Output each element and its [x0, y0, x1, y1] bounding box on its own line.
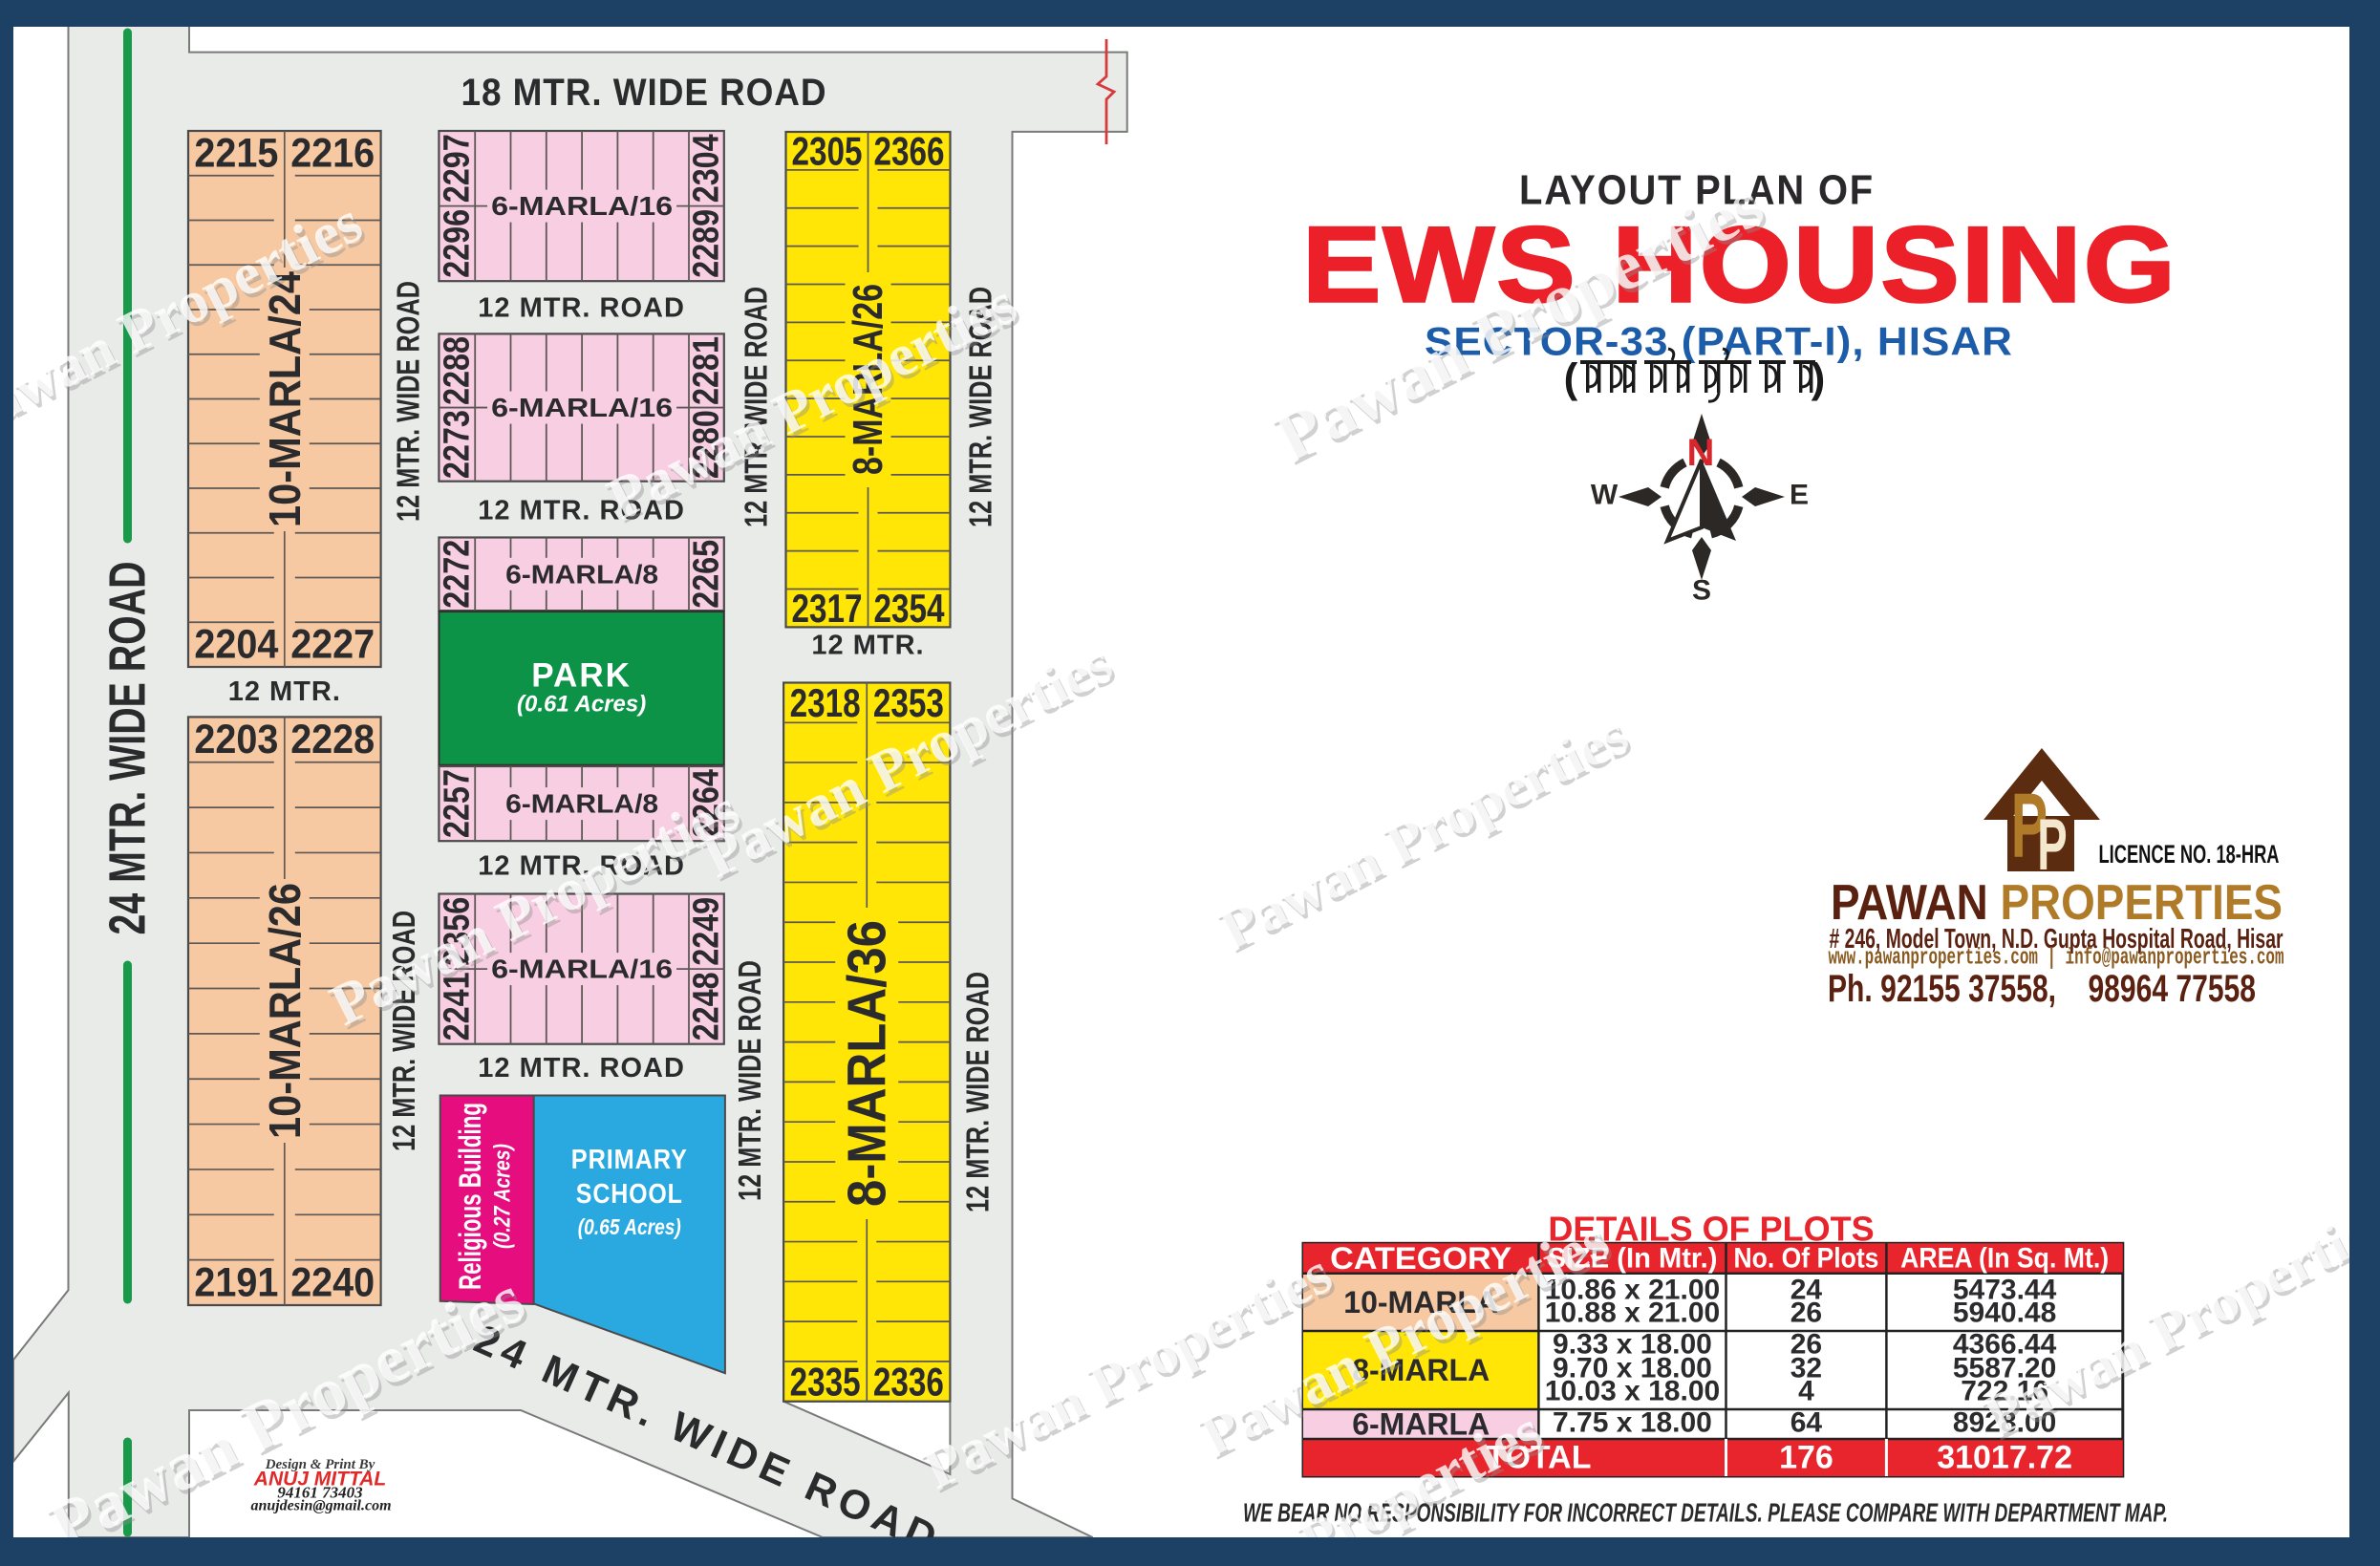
svg-text:(0.27 Acres): (0.27 Acres) [490, 1144, 516, 1249]
svg-text:2240: 2240 [290, 1259, 375, 1305]
svg-text:10.88 x 21.00: 10.88 x 21.00 [1545, 1298, 1721, 1329]
svg-text:26: 26 [1790, 1298, 1822, 1329]
svg-text:2366: 2366 [874, 128, 945, 173]
svg-text:2249: 2249 [686, 897, 726, 966]
svg-text:18 MTR. WIDE ROAD: 18 MTR. WIDE ROAD [461, 72, 827, 114]
svg-text:2305: 2305 [792, 128, 863, 173]
svg-text:12 MTR. WIDE ROAD: 12 MTR. WIDE ROAD [960, 972, 996, 1212]
svg-text:12 MTR. WIDE ROAD: 12 MTR. WIDE ROAD [391, 281, 426, 522]
svg-text:Religious Building: Religious Building [453, 1103, 487, 1290]
svg-text:2265: 2265 [686, 540, 726, 609]
svg-text:2191: 2191 [194, 1259, 278, 1305]
svg-text:7.75 x 18.00: 7.75 x 18.00 [1553, 1407, 1712, 1439]
svg-text:2304: 2304 [686, 134, 726, 203]
svg-text:(0.61 Acres): (0.61 Acres) [517, 692, 646, 718]
svg-text:6-MARLA/16: 6-MARLA/16 [491, 191, 673, 221]
svg-text:S: S [1692, 575, 1711, 607]
svg-text:10-MARLA/26: 10-MARLA/26 [260, 883, 310, 1139]
svg-text:6-MARLA/16: 6-MARLA/16 [491, 393, 673, 422]
svg-text:64: 64 [1790, 1407, 1823, 1439]
svg-text:10-MARLA/24: 10-MARLA/24 [260, 271, 310, 527]
svg-text:2204: 2204 [194, 622, 278, 668]
svg-text:anujdesin@gmail.com: anujdesin@gmail.com [250, 1498, 391, 1514]
svg-text:2297: 2297 [437, 134, 477, 203]
svg-text:12 MTR. WIDE ROAD: 12 MTR. WIDE ROAD [732, 960, 767, 1201]
svg-text:2272: 2272 [437, 540, 477, 609]
svg-text:24 MTR. WIDE ROAD: 24 MTR. WIDE ROAD [99, 562, 157, 935]
svg-text:2336: 2336 [873, 1359, 944, 1404]
svg-text:Pawan Properties: Pawan Properties [1210, 700, 1639, 961]
svg-text:2228: 2228 [290, 717, 375, 762]
svg-text:2216: 2216 [290, 130, 375, 176]
svg-text:E: E [1790, 480, 1809, 511]
svg-text:2317: 2317 [792, 586, 863, 631]
svg-text:2289: 2289 [686, 209, 726, 278]
svg-text:2248: 2248 [686, 972, 726, 1040]
svg-text:2354: 2354 [874, 586, 946, 631]
svg-text:(0.65 Acres): (0.65 Acres) [578, 1214, 681, 1239]
svg-text:2318: 2318 [790, 680, 861, 725]
svg-text:AREA (In Sq. Mt.): AREA (In Sq. Mt.) [1900, 1243, 2109, 1275]
svg-text:12 MTR.: 12 MTR. [811, 631, 924, 661]
svg-text:176: 176 [1779, 1440, 1833, 1476]
svg-text:(: ( [1564, 355, 1578, 402]
svg-text:12 MTR. ROAD: 12 MTR. ROAD [478, 292, 685, 323]
svg-text:LICENCE NO. 18-HRA: LICENCE NO. 18-HRA [2099, 840, 2280, 869]
svg-text:2215: 2215 [194, 130, 278, 176]
svg-text:12 MTR.: 12 MTR. [228, 676, 341, 707]
svg-text:12 MTR. ROAD: 12 MTR. ROAD [478, 1053, 685, 1083]
svg-text:PAWAN PROPERTIES: PAWAN PROPERTIES [1831, 875, 2283, 931]
svg-text:SCHOOL: SCHOOL [576, 1179, 683, 1210]
svg-text:6-MARLA/8: 6-MARLA/8 [505, 789, 658, 819]
svg-text:P: P [2037, 805, 2067, 886]
svg-text:W: W [1591, 480, 1619, 511]
svg-text:N: N [1687, 432, 1715, 474]
svg-text:2203: 2203 [194, 717, 278, 762]
svg-text:6-MARLA/16: 6-MARLA/16 [491, 955, 673, 984]
svg-text:8-MARLA/36: 8-MARLA/36 [836, 920, 897, 1207]
svg-text:2296: 2296 [437, 209, 477, 278]
svg-text:2257: 2257 [437, 769, 477, 838]
svg-text:5940.48: 5940.48 [1953, 1298, 2056, 1329]
svg-text:Ph. 92155 37558, 98964 7755: Ph. 92155 37558, 98964 77558 [1828, 968, 2256, 1010]
svg-text:2227: 2227 [290, 622, 375, 668]
svg-text:2288: 2288 [437, 336, 477, 405]
svg-text:4: 4 [1798, 1376, 1814, 1407]
svg-text:PARK: PARK [531, 657, 632, 695]
svg-text:No. Of Plots: No. Of Plots [1733, 1243, 1878, 1275]
svg-text:10.03 x 18.00: 10.03 x 18.00 [1545, 1376, 1721, 1407]
svg-text:2281: 2281 [686, 336, 726, 405]
svg-text:2273: 2273 [437, 410, 477, 479]
svg-text:PRIMARY: PRIMARY [571, 1145, 688, 1175]
svg-text:6-MARLA/8: 6-MARLA/8 [505, 559, 658, 589]
svg-text:2335: 2335 [790, 1359, 861, 1404]
